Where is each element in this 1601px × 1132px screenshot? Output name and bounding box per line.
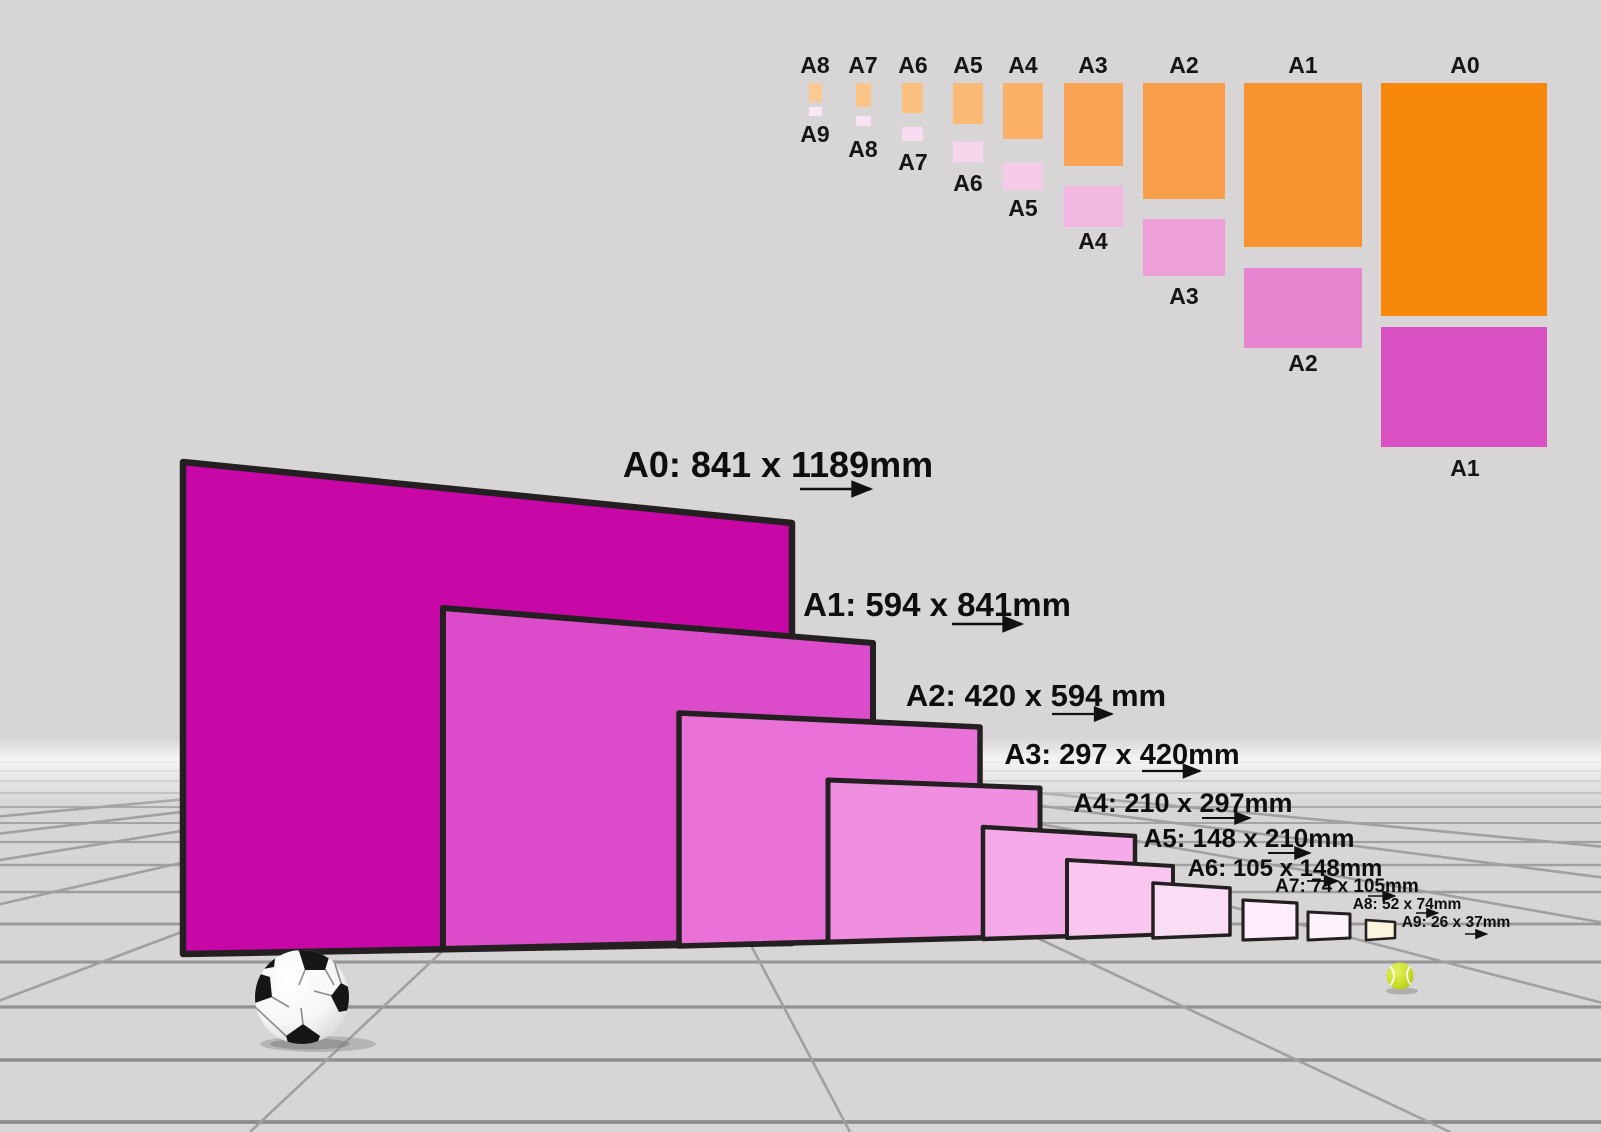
size-chart-top-label: A1 [1288,52,1318,78]
size-chart-bottom-label: A4 [1078,228,1108,254]
size-chart-landscape-rect [1244,268,1362,348]
size-chart-landscape-rect [953,142,983,162]
sheet-a9 [1366,920,1395,940]
size-chart-landscape-rect [809,107,822,116]
size-chart-top-label: A3 [1078,52,1107,78]
size-chart-bottom-label: A2 [1288,350,1317,376]
size-chart-portrait-rect [902,83,923,113]
size-chart-portrait-rect [1064,83,1123,166]
size-chart-landscape-rect [856,116,871,126]
sheet-a9-label: A9: 26 x 37mm [1402,914,1511,931]
sheet-a7 [1243,900,1297,940]
size-chart-portrait-rect [1143,83,1225,199]
sheet-a2-label: A2: 420 x 594 mm [906,678,1166,713]
size-chart-bottom-label: A3 [1169,283,1198,309]
size-chart-bottom-label: A1 [1450,455,1480,481]
sheet-a3-label: A3: 297 x 420mm [1004,739,1239,771]
size-chart-top-label: A4 [1008,52,1038,78]
size-chart-top-label: A6 [898,52,927,78]
size-chart-portrait-rect [809,83,822,102]
size-chart-portrait-rect [1244,83,1362,247]
paper-size-diagram: A8 A9 A7 A8 A6 A7 A5 A6 A4 A5 A3 A4 A2 A… [0,0,1601,1132]
diagram-canvas: A8 A9 A7 A8 A6 A7 A5 A6 A4 A5 A3 A4 A2 A… [0,0,1601,1132]
size-chart-bottom-label: A5 [1008,195,1038,221]
size-chart-landscape-rect [1143,219,1225,276]
sheet-a8-label: A8: 52 x 74mm [1353,896,1462,913]
size-chart-top-label: A7 [848,52,877,78]
size-chart-portrait-rect [856,83,871,107]
size-chart-top-label: A2 [1169,52,1198,78]
size-chart-top-label: A8 [800,52,830,78]
size-chart-top-label: A5 [953,52,983,78]
size-chart-landscape-rect [1381,327,1547,447]
sheet-a0-label: A0: 841 x 1189mm [623,444,933,485]
sheet-a8 [1308,912,1350,940]
size-chart-bottom-label: A7 [898,149,927,175]
size-chart-landscape-rect [1064,186,1123,227]
sheet-a6 [1153,883,1230,938]
size-chart-bottom-label: A9 [800,121,829,147]
sheet-a7-label: A7: 74 x 105mm [1275,876,1419,897]
sheet-a1-label: A1: 594 x 841mm [803,586,1071,623]
size-chart-landscape-rect [1003,163,1043,190]
size-chart-bottom-label: A6 [953,170,982,196]
size-chart-portrait-rect [1003,83,1043,139]
size-chart-top-label: A0 [1450,52,1479,78]
size-chart-portrait-rect [953,83,983,124]
sheet-a5-label: A5: 148 x 210mm [1143,823,1354,853]
size-chart-landscape-rect [902,127,923,141]
sheet-a4-label: A4: 210 x 297mm [1073,788,1292,818]
size-chart-portrait-rect [1381,83,1547,316]
size-chart-bottom-label: A8 [848,136,878,162]
